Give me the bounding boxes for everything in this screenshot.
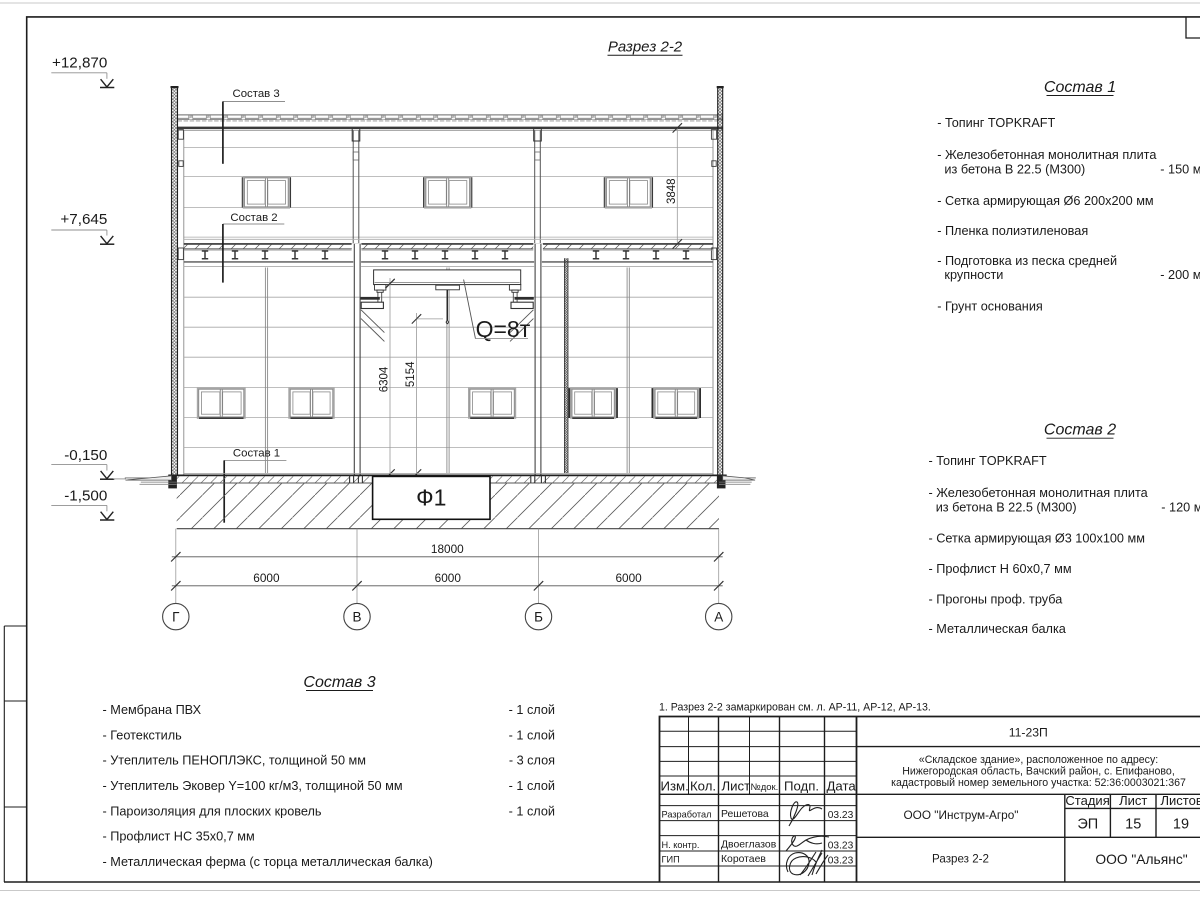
svg-text:Q=8т: Q=8т bbox=[476, 316, 531, 342]
svg-text:Листов: Листов bbox=[1161, 793, 1200, 808]
svg-text:+12,870: +12,870 bbox=[52, 54, 107, 71]
svg-text:из бетона В 22.5 (М300): из бетона В 22.5 (М300) bbox=[944, 163, 1085, 177]
svg-text:А: А bbox=[714, 609, 723, 624]
svg-text:1. Разрез 2-2 замаркирован см.: 1. Разрез 2-2 замаркирован см. л. АР-11,… bbox=[659, 702, 931, 714]
svg-text:- Сетка армирующая Ø3 100х100: - Сетка армирующая Ø3 100х100 мм bbox=[929, 531, 1145, 545]
svg-text:Ф1: Ф1 bbox=[416, 485, 446, 511]
svg-text:Состав 3: Состав 3 bbox=[233, 88, 280, 100]
svg-text:03.23: 03.23 bbox=[828, 841, 854, 852]
svg-text:- Грунт основания: - Грунт основания bbox=[937, 300, 1043, 314]
svg-text:- 1 слой: - 1 слой bbox=[509, 703, 555, 717]
svg-text:Стадия: Стадия bbox=[1065, 793, 1109, 808]
svg-text:- Железобетонная монолитная п: - Железобетонная монолитная плита bbox=[929, 486, 1149, 500]
svg-text:Н. контр.: Н. контр. bbox=[662, 840, 700, 850]
svg-text:6000: 6000 bbox=[253, 571, 280, 585]
svg-text:- Геотекстиль: - Геотекстиль bbox=[103, 728, 183, 742]
svg-text:Состав 2: Состав 2 bbox=[230, 212, 277, 224]
svg-text:- 1 слой: - 1 слой bbox=[509, 779, 555, 793]
svg-text:- Утеплитель ПЕНОПЛЭКС, толщин: - Утеплитель ПЕНОПЛЭКС, толщиной 50 мм bbox=[103, 754, 367, 768]
svg-text:Лист: Лист bbox=[722, 779, 751, 794]
svg-text:03.23: 03.23 bbox=[828, 856, 854, 867]
svg-text:15: 15 bbox=[1125, 817, 1141, 833]
svg-text:18000: 18000 bbox=[431, 542, 464, 556]
svg-text:Г: Г bbox=[172, 609, 180, 624]
svg-text:-1,500: -1,500 bbox=[64, 488, 107, 505]
svg-text:- Утеплитель Эковер Y=100 кг/м: - Утеплитель Эковер Y=100 кг/м3, толщино… bbox=[103, 779, 403, 793]
svg-text:Кол.: Кол. bbox=[690, 779, 716, 794]
svg-text:ЭП: ЭП bbox=[1077, 817, 1098, 833]
svg-text:- Прогоны проф. труба: - Прогоны проф. труба bbox=[929, 593, 1064, 607]
svg-text:- Металлическая ферма (с торца: - Металлическая ферма (с торца металличе… bbox=[103, 855, 433, 869]
svg-text:- Сетка армирующая Ø6 200х200: - Сетка армирующая Ø6 200х200 мм bbox=[937, 194, 1153, 208]
svg-text:- Профлист НС 35х0,7 мм: - Профлист НС 35х0,7 мм bbox=[103, 830, 255, 844]
svg-text:- Пленка полиэтиленовая: - Пленка полиэтиленовая bbox=[937, 224, 1088, 238]
svg-text:6304: 6304 bbox=[379, 366, 391, 392]
svg-text:11-23П: 11-23П bbox=[1009, 726, 1048, 740]
svg-text:- 150 мм: - 150 мм bbox=[1160, 163, 1200, 177]
svg-text:ГИП: ГИП bbox=[662, 855, 680, 865]
svg-text:- Мембрана ПВХ: - Мембрана ПВХ bbox=[103, 703, 202, 717]
svg-text:Лист: Лист bbox=[1119, 793, 1147, 808]
svg-text:- 120 мм: - 120 мм bbox=[1161, 501, 1200, 515]
svg-text:Разрез 2-2: Разрез 2-2 bbox=[932, 853, 989, 866]
svg-text:Нижегородская область, Вачский: Нижегородская область, Вачский район, с.… bbox=[902, 766, 1175, 778]
svg-text:«Складское здание», расположен: «Складское здание», расположенное по адр… bbox=[919, 754, 1158, 766]
svg-text:- 3 слоя: - 3 слоя bbox=[509, 754, 555, 768]
svg-text:Двоеглазов: Двоеглазов bbox=[721, 840, 777, 851]
svg-text:+7,645: +7,645 bbox=[60, 211, 107, 228]
svg-text:Решетова: Решетова bbox=[721, 809, 769, 820]
svg-text:Коротаев: Коротаев bbox=[721, 854, 766, 865]
svg-text:- Топинг TOPKRAFT: - Топинг TOPKRAFT bbox=[929, 454, 1047, 468]
svg-text:5154: 5154 bbox=[405, 361, 417, 387]
svg-text:- 200 мм: - 200 мм bbox=[1160, 268, 1200, 282]
svg-text:Состав 1: Состав 1 bbox=[1044, 79, 1116, 96]
svg-text:03.23: 03.23 bbox=[828, 810, 854, 821]
svg-text:- 1 слой: - 1 слой bbox=[509, 804, 555, 818]
svg-text:- Профлист Н 60х0,7 мм: - Профлист Н 60х0,7 мм bbox=[929, 562, 1072, 576]
svg-text:Состав 1: Состав 1 bbox=[233, 448, 280, 460]
svg-text:В: В bbox=[352, 609, 361, 624]
svg-text:-0,150: -0,150 bbox=[64, 447, 107, 464]
svg-text:Разработал: Разработал bbox=[662, 810, 712, 820]
svg-text:- Железобетонная монолитная п: - Железобетонная монолитная плита bbox=[937, 148, 1157, 162]
svg-text:кадастровый номер земельного у: кадастровый номер земельного участка: 52… bbox=[891, 777, 1186, 789]
svg-text:Разрез 2-2: Разрез 2-2 bbox=[608, 39, 683, 56]
svg-text:- Пароизоляция для плоских кро: - Пароизоляция для плоских кровель bbox=[103, 804, 322, 818]
svg-text:Изм.: Изм. bbox=[661, 779, 689, 794]
svg-text:- 1 слой: - 1 слой bbox=[509, 728, 555, 742]
svg-text:Дата: Дата bbox=[827, 779, 857, 794]
svg-text:- Топинг TOPKRAFT: - Топинг TOPKRAFT bbox=[937, 116, 1055, 130]
svg-text:- Металлическая балка: - Металлическая балка bbox=[929, 622, 1067, 636]
svg-text:Б: Б bbox=[534, 609, 543, 624]
svg-text:Подп.: Подп. bbox=[784, 779, 819, 794]
svg-text:ООО "Инструм-Агро": ООО "Инструм-Агро" bbox=[903, 808, 1018, 822]
svg-text:6000: 6000 bbox=[435, 571, 462, 585]
svg-text:- Подготовка из песка средней: - Подготовка из песка средней bbox=[937, 254, 1117, 268]
svg-text:№док.: №док. bbox=[751, 782, 779, 793]
svg-text:Состав 2: Состав 2 bbox=[1044, 422, 1116, 439]
svg-text:19: 19 bbox=[1173, 817, 1189, 833]
svg-text:крупности: крупности bbox=[944, 268, 1003, 282]
svg-text:Состав 3: Состав 3 bbox=[303, 674, 375, 691]
svg-text:3848: 3848 bbox=[666, 178, 678, 204]
svg-text:6000: 6000 bbox=[615, 571, 642, 585]
svg-text:ООО "Альянс": ООО "Альянс" bbox=[1095, 852, 1187, 867]
svg-text:из бетона В 22.5 (М300): из бетона В 22.5 (М300) bbox=[936, 501, 1077, 515]
